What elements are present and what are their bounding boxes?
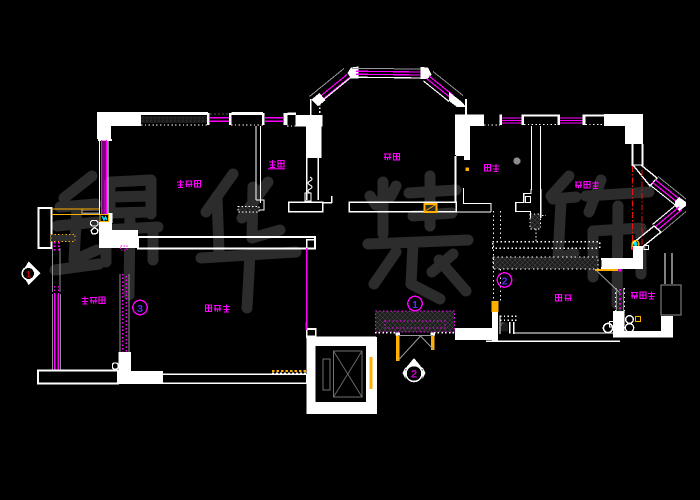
svg-text:3: 3 <box>137 303 143 315</box>
svg-text:2: 2 <box>502 276 508 288</box>
svg-text:1: 1 <box>412 299 418 311</box>
svg-text:2: 2 <box>411 369 417 381</box>
svg-text:1: 1 <box>26 270 31 280</box>
